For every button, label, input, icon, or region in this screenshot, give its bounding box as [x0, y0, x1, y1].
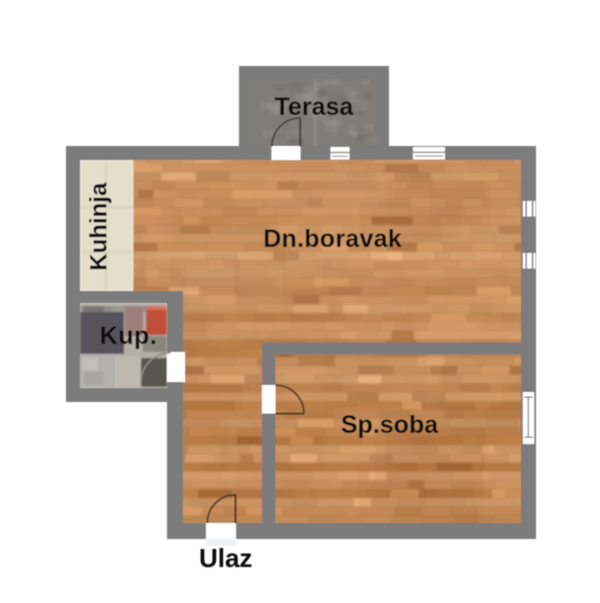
- svg-text:Ulaz: Ulaz: [199, 543, 252, 573]
- svg-text:Kup.: Kup.: [100, 322, 158, 350]
- svg-text:Terasa: Terasa: [275, 93, 355, 121]
- svg-text:Kuhinja: Kuhinja: [86, 182, 113, 271]
- svg-text:Sp.soba: Sp.soba: [341, 411, 439, 439]
- svg-text:Dn.boravak: Dn.boravak: [263, 225, 402, 253]
